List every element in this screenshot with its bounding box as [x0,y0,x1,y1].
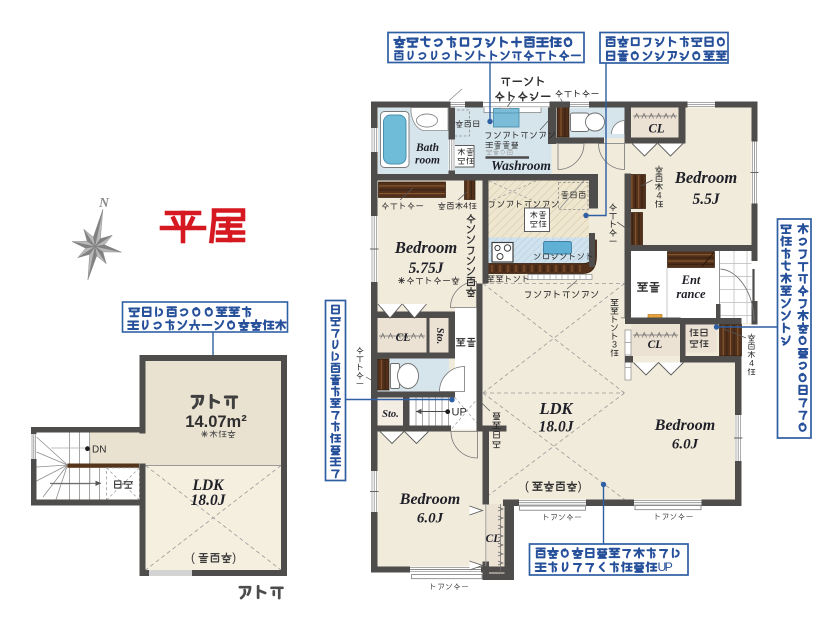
svg-text:(: ( [525,481,529,493]
svg-text:Bedroom: Bedroom [394,238,458,257]
svg-text:6.0J: 6.0J [417,511,444,527]
svg-text:(: ( [191,553,195,565]
svg-text:Bedroom: Bedroom [674,168,738,187]
svg-text:4: 4 [656,191,661,201]
svg-text:Ent: Ent [681,273,701,287]
svg-text:Bath: Bath [415,142,439,154]
svg-text:4: 4 [463,201,468,211]
svg-text:rance: rance [676,287,706,301]
svg-text:Sto.: Sto. [382,409,399,420]
svg-text:Bedroom: Bedroom [399,491,460,508]
svg-text:N: N [98,195,110,210]
svg-text:4: 4 [749,358,754,368]
svg-text:P: P [665,560,673,574]
svg-text:18.0J: 18.0J [191,492,227,509]
svg-text:18.0J: 18.0J [539,419,575,436]
svg-text:DN: DN [92,445,106,456]
svg-text:room: room [415,155,440,167]
svg-text:Washroom: Washroom [491,158,551,173]
svg-text:CL: CL [648,339,663,351]
svg-text:CL: CL [649,122,665,136]
svg-text:Sto.: Sto. [434,328,445,345]
svg-text:5.75J: 5.75J [409,260,445,277]
svg-text:6.0J: 6.0J [672,437,699,453]
svg-text:): ) [232,553,236,565]
svg-text:5.5J: 5.5J [692,191,720,208]
svg-text:LDK: LDK [539,399,574,418]
svg-text:CL: CL [486,533,501,545]
svg-text:): ) [578,481,582,493]
svg-text:14.07m²: 14.07m² [185,413,247,431]
svg-text:UP: UP [452,407,467,419]
svg-text:Bedroom: Bedroom [654,417,715,434]
svg-text:3: 3 [612,340,617,350]
svg-text:CL: CL [396,332,411,344]
